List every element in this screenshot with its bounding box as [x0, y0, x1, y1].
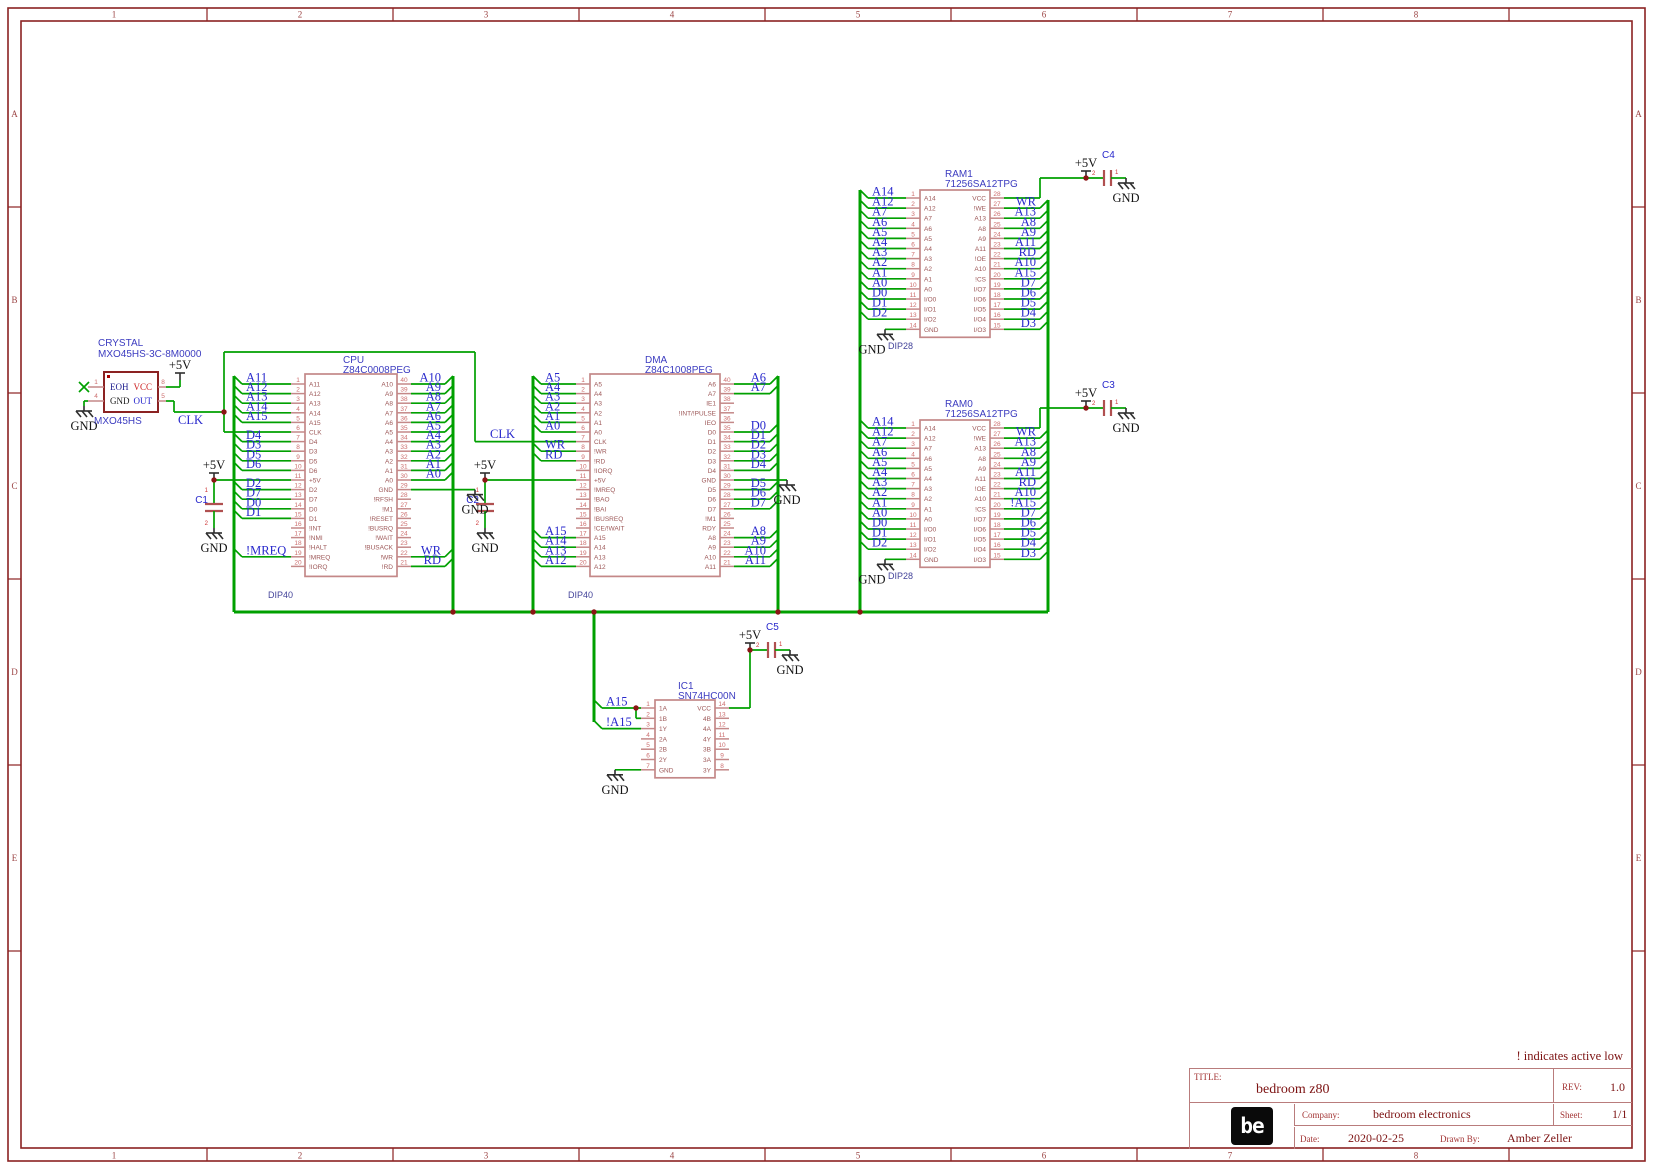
pin-number: 5 — [646, 742, 650, 749]
pin-number: 36 — [723, 415, 731, 422]
pin-number: 40 — [400, 377, 408, 384]
pin-name: A14 — [309, 410, 321, 417]
pin-name: A14 — [594, 545, 606, 552]
pin-name: !WE — [974, 436, 987, 443]
net-label: D3 — [1021, 546, 1036, 560]
pin1-marker — [107, 375, 110, 378]
pin-name: A0 — [924, 516, 932, 523]
pin-name: A9 — [708, 545, 716, 552]
gnd-icon — [788, 655, 793, 661]
chip-part: 71256SA12TPG — [945, 409, 1018, 420]
pin-name: A3 — [924, 486, 932, 493]
pin-number: 6 — [646, 753, 650, 760]
pin-name: !BUSACK — [364, 545, 393, 552]
pin-name: I/O6 — [974, 297, 987, 304]
pin-number: 2 — [911, 431, 915, 438]
pin-number: 14 — [579, 502, 587, 509]
pin-number: 4 — [296, 406, 300, 413]
pin-name: IE1 — [706, 401, 716, 408]
pin-name: IEO — [705, 420, 716, 427]
pin-number: 18 — [579, 540, 587, 547]
pin-number: 4 — [911, 451, 915, 458]
pin-name: I/O7 — [974, 516, 987, 523]
pin-name: 2A — [659, 736, 668, 743]
frame-row-label: A — [1635, 109, 1642, 119]
net-label: D2 — [872, 536, 887, 550]
junction-dot — [775, 609, 780, 614]
pin-number: 13 — [909, 312, 917, 319]
frame-column-label: 6 — [1042, 1151, 1047, 1161]
gnd-icon — [791, 485, 796, 491]
pin-number: 6 — [581, 425, 585, 432]
pin-number: 11 — [295, 473, 302, 480]
pin-number: 28 — [993, 421, 1001, 428]
pin-name: !MREQ — [594, 487, 615, 494]
pin-name: I/O1 — [924, 537, 937, 544]
pin-name: 4Y — [703, 736, 712, 743]
pin-number: 8 — [581, 444, 585, 451]
frame-column-label: 1 — [112, 10, 117, 20]
pin-name: A11 — [705, 564, 716, 571]
pin-name: !CE/!WAIT — [594, 526, 624, 533]
pin-name: D0 — [309, 506, 318, 513]
junction-dot — [1083, 175, 1088, 180]
pin-number: 4 — [94, 393, 98, 400]
pin-number: 35 — [400, 425, 408, 432]
pin-number: 8 — [911, 492, 915, 499]
frame-column-label: 5 — [856, 10, 861, 20]
pin-name: I/O1 — [924, 307, 937, 314]
pin-number: 16 — [993, 312, 1001, 319]
pin-number: 21 — [723, 559, 731, 566]
drawn-by-value: Amber Zeller — [1507, 1131, 1572, 1146]
pin-name: !BUSREQ — [594, 516, 623, 523]
pin-name: !CS — [975, 506, 987, 513]
schematic-sheet: 1122334455667788AABBCCDDEECLK+5VGNDC112+… — [0, 0, 1653, 1169]
pin-number: 34 — [723, 435, 731, 442]
pin-name: !M1 — [705, 516, 716, 523]
pin-number: 1 — [296, 377, 300, 384]
pin-number: 3 — [911, 441, 915, 448]
sheet-value: 1/1 — [1612, 1107, 1627, 1122]
pin-name: A2 — [594, 410, 602, 417]
pin-name: I/O7 — [974, 286, 987, 293]
pin-name: 4B — [703, 716, 711, 723]
pin-number: 24 — [993, 231, 1001, 238]
v5-label: +5V — [1075, 156, 1097, 170]
pin-number: 2 — [911, 201, 915, 208]
net-label: A12 — [545, 553, 567, 567]
pin-number: 31 — [723, 463, 731, 470]
pin-name: A10 — [974, 266, 986, 273]
crystal-pin-name: GND — [110, 396, 130, 406]
pin-number: 11 — [910, 292, 917, 299]
pin-name: A9 — [978, 236, 986, 243]
frame-column-label: 4 — [670, 10, 675, 20]
pin-number: 21 — [993, 262, 1001, 269]
pin-name: A4 — [924, 476, 932, 483]
frame-row-label: D — [1635, 667, 1642, 677]
net-label: D1 — [246, 505, 261, 519]
pin-number: 19 — [993, 512, 1001, 519]
pin-number: 20 — [993, 502, 1001, 509]
pin-number: 13 — [579, 492, 587, 499]
pin-number: 33 — [400, 444, 408, 451]
pin-number: 18 — [993, 292, 1001, 299]
pin-name: A3 — [385, 449, 393, 456]
gnd-icon — [619, 775, 624, 781]
pin-name: 3B — [703, 747, 711, 754]
pin-number: 9 — [720, 753, 724, 760]
frame-row-label: C — [11, 481, 17, 491]
capacitor-pin-number: 2 — [756, 643, 760, 649]
pin-name: D7 — [309, 497, 318, 504]
frame-row-label: B — [11, 295, 17, 305]
net-label-clk: CLK — [178, 413, 203, 427]
crystal-pin-name: OUT — [134, 396, 153, 406]
frame-column-label: 8 — [1414, 10, 1419, 20]
pin-name: I/O0 — [924, 527, 937, 534]
gnd-icon — [889, 334, 894, 340]
pin-name: !OE — [975, 486, 987, 493]
pin-number: 34 — [400, 435, 408, 442]
pin-name: A1 — [924, 506, 932, 513]
pin-number: 2 — [581, 387, 585, 394]
capacitor-pin-number: 2 — [205, 521, 209, 527]
pin-name: A5 — [594, 382, 602, 389]
pin-number: 3 — [581, 396, 585, 403]
pin-name: I/O3 — [974, 557, 987, 564]
v5-label: +5V — [739, 628, 761, 642]
pin-name: !INT — [309, 526, 321, 533]
pin-number: 26 — [400, 511, 408, 518]
pin-number: 3 — [296, 396, 300, 403]
pin-name: A7 — [924, 216, 932, 223]
gnd-icon — [479, 495, 484, 501]
pin-name: !RESET — [370, 516, 394, 523]
pin-name: A12 — [924, 436, 936, 443]
chip-cpu: CPUZ84C0008PEGDIP401A11A112A12A123A13A13… — [234, 355, 475, 600]
pin-number: 38 — [400, 396, 408, 403]
junction-dot — [1083, 405, 1088, 410]
pin-number: 21 — [400, 559, 408, 566]
frame-column-label: 5 — [856, 1151, 861, 1161]
pin-number: 8 — [720, 763, 724, 770]
pin-name: I/O0 — [924, 297, 937, 304]
pin-number: 35 — [723, 425, 731, 432]
capacitor-ref: C3 — [1102, 380, 1115, 391]
gnd-icon — [1118, 183, 1123, 189]
pin-number: 10 — [909, 282, 917, 289]
frame-column-label: 7 — [1228, 1151, 1233, 1161]
pin-number: 14 — [294, 502, 302, 509]
pin-name: !BUSRQ — [368, 526, 393, 533]
pin-name: D6 — [309, 468, 318, 475]
pin-name: !IORQ — [309, 564, 327, 571]
v5-label: +5V — [474, 458, 496, 472]
gnd-label: GND — [858, 342, 885, 356]
pin-name: GND — [659, 767, 674, 774]
gnd-icon — [76, 411, 81, 417]
pin-name: +5V — [309, 478, 321, 485]
v5-label: +5V — [203, 458, 225, 472]
pin-number: 5 — [296, 415, 300, 422]
crystal-ref: CRYSTAL — [98, 338, 144, 349]
frame-column-label: 1 — [112, 1151, 117, 1161]
net-label: A7 — [751, 380, 766, 394]
pin-number: 16 — [579, 521, 587, 528]
pin-name: A15 — [309, 420, 321, 427]
pin-number: 37 — [400, 406, 408, 413]
gnd-label: GND — [776, 663, 803, 677]
capacitor-pin-number: 1 — [205, 488, 209, 494]
pin-name: A1 — [385, 468, 393, 475]
pin-number: 37 — [723, 406, 731, 413]
net-label: !MREQ — [246, 543, 286, 557]
pin-name: RDY — [702, 526, 716, 533]
gnd-icon — [218, 533, 223, 539]
pin-number: 23 — [723, 540, 731, 547]
company-cell: Company: bedroom electronics — [1294, 1104, 1553, 1126]
gnd-icon — [477, 533, 482, 539]
pin-name: A6 — [924, 456, 932, 463]
gnd-icon — [782, 655, 787, 661]
pin-number: 29 — [723, 483, 731, 490]
title-cell: TITLE: bedroom z80 — [1190, 1069, 1553, 1103]
pin-number: 10 — [718, 742, 726, 749]
pin-name: 2B — [659, 747, 667, 754]
pin-number: 19 — [993, 282, 1001, 289]
pin-name: D1 — [708, 439, 717, 446]
pin-name: A10 — [704, 554, 716, 561]
chip-part: Z84C0008PEG — [343, 365, 411, 376]
rev-value: 1.0 — [1610, 1080, 1625, 1095]
pin-name: 1B — [659, 716, 667, 723]
net-label: RD — [424, 553, 441, 567]
pin-name: A2 — [385, 458, 393, 465]
gnd-icon — [489, 533, 494, 539]
pin-number: 39 — [400, 387, 408, 394]
pin-name: !RFSH — [374, 497, 394, 504]
pin-name: A2 — [924, 496, 932, 503]
pin-name: A15 — [594, 535, 606, 542]
company-label: Company: — [1302, 1110, 1340, 1120]
pin-name: !WR — [380, 554, 393, 561]
pin-number: 6 — [911, 242, 915, 249]
junction-dot — [530, 609, 535, 614]
pin-number: 27 — [723, 502, 731, 509]
pin-name: A4 — [385, 439, 393, 446]
pin-number: 14 — [909, 552, 917, 559]
pin-number: 32 — [723, 454, 731, 461]
gnd-icon — [889, 564, 894, 570]
pin-number: 17 — [993, 302, 1001, 309]
crystal-pin-name: EOH — [110, 382, 129, 392]
gnd-icon — [1130, 183, 1135, 189]
pin-name: A0 — [924, 286, 932, 293]
pin-number: 28 — [993, 191, 1001, 198]
pin-number: 20 — [294, 559, 302, 566]
pin-number: 15 — [993, 552, 1001, 559]
pin-number: 26 — [993, 211, 1001, 218]
net-label: A0 — [426, 467, 441, 481]
gnd-label: GND — [1112, 191, 1139, 205]
pin-number: 19 — [294, 550, 302, 557]
pin-number: 14 — [718, 701, 726, 708]
pin-number: 9 — [911, 502, 915, 509]
chip-part: 71256SA12TPG — [945, 179, 1018, 190]
rev-cell: REV: 1.0 — [1553, 1069, 1632, 1103]
junction-dot — [633, 705, 638, 710]
pin-name: !INT/!PULSE — [679, 410, 717, 417]
pin-name: A8 — [385, 401, 393, 408]
capacitor-ref: C1 — [195, 495, 208, 506]
chip-body — [590, 374, 720, 576]
pin-name: CLK — [594, 439, 607, 446]
pin-name: A7 — [924, 446, 932, 453]
pin-name: A12 — [924, 206, 936, 213]
net-label: D4 — [751, 457, 767, 471]
pin-name: A1 — [594, 420, 602, 427]
pin-name: GND — [702, 478, 717, 485]
pin-name: VCC — [972, 196, 986, 203]
pin-name: A8 — [708, 535, 716, 542]
pin-name: A2 — [924, 266, 932, 273]
chip-ic1: IC1SN74HC00N11AA1521B31Y!A1542A52B62Y7GN… — [594, 681, 736, 778]
gnd-icon — [607, 775, 612, 781]
pin-name: I/O6 — [974, 527, 987, 534]
pin-number: 7 — [581, 435, 585, 442]
pin-name: !IORQ — [594, 468, 612, 475]
pin-name: !NMI — [309, 535, 323, 542]
pin-name: D3 — [309, 449, 318, 456]
net-label: RD — [545, 447, 562, 461]
pin-name: A13 — [309, 401, 321, 408]
pin-number: 1 — [581, 377, 585, 384]
pin-number: 10 — [909, 512, 917, 519]
gnd-label: GND — [461, 503, 488, 517]
net-label: A15 — [606, 695, 628, 709]
pin-name: A4 — [594, 391, 602, 398]
gnd-icon — [483, 533, 488, 539]
chip-footprint: DIP40 — [568, 590, 593, 600]
pin-name: !WE — [974, 206, 987, 213]
pin-number: 5 — [911, 461, 915, 468]
sheet-cell: Sheet: 1/1 — [1553, 1104, 1632, 1126]
pin-number: 23 — [993, 472, 1001, 479]
pin-name: A9 — [385, 391, 393, 398]
pin-name: A0 — [385, 478, 393, 485]
pin-name: 1A — [659, 706, 668, 713]
pin-name: A13 — [974, 216, 986, 223]
pin-name: A14 — [924, 196, 936, 203]
pin-name: !MREQ — [309, 554, 330, 561]
net-label: D6 — [246, 457, 261, 471]
pin-name: A3 — [924, 256, 932, 263]
capacitor-pin-number: 2 — [476, 521, 480, 527]
pin-number: 10 — [579, 463, 587, 470]
pin-number: 1 — [646, 701, 650, 708]
frame-column-label: 3 — [484, 1151, 489, 1161]
capacitor-pin-number: 1 — [779, 642, 783, 648]
net-label: !A15 — [606, 715, 632, 729]
pin-name: D4 — [708, 468, 717, 475]
junction-dot — [221, 409, 226, 414]
pin-number: 7 — [296, 435, 300, 442]
pin-name: D3 — [708, 458, 717, 465]
pin-number: 28 — [400, 492, 408, 499]
pin-number: 18 — [294, 540, 302, 547]
pin-number: 13 — [294, 492, 302, 499]
pin-name: D5 — [309, 458, 318, 465]
pin-name: D4 — [309, 439, 318, 446]
pin-number: 9 — [581, 454, 585, 461]
pin-number: 4 — [581, 406, 585, 413]
pin-name: !RD — [594, 458, 606, 465]
pin-number: 30 — [723, 473, 731, 480]
pin-number: 14 — [909, 322, 917, 329]
pin-name: D5 — [708, 487, 717, 494]
pin-name: A8 — [978, 456, 986, 463]
pin-number: 15 — [993, 322, 1001, 329]
pin-number: 25 — [993, 221, 1001, 228]
pin-number: 17 — [993, 532, 1001, 539]
chip-part: Z84C1008PEG — [645, 365, 713, 376]
junction-dot — [211, 477, 216, 482]
pin-number: 27 — [993, 201, 1001, 208]
pin-name: !OE — [975, 256, 987, 263]
gnd-label: GND — [773, 493, 800, 507]
chip-part: SN74HC00N — [678, 691, 736, 702]
pin-number: 4 — [646, 732, 650, 739]
gnd-icon — [785, 485, 790, 491]
pin-number: 6 — [911, 472, 915, 479]
gnd-icon — [877, 334, 882, 340]
sheet-inner-border — [21, 21, 1632, 1148]
pin-number: 23 — [993, 242, 1001, 249]
pin-name: A4 — [924, 246, 932, 253]
pin-name: A11 — [975, 476, 986, 483]
junction-dot — [482, 477, 487, 482]
pin-name: +5V — [594, 478, 606, 485]
pin-number: 7 — [911, 252, 915, 259]
sheet-label: Sheet: — [1560, 1110, 1583, 1120]
sheet-outer-border — [8, 8, 1645, 1161]
pin-number: 23 — [400, 540, 408, 547]
gnd-label: GND — [858, 572, 885, 586]
pin-number: 22 — [993, 252, 1001, 259]
pin-name: A13 — [974, 446, 986, 453]
pin-number: 15 — [294, 511, 302, 518]
pin-number: 25 — [723, 521, 731, 528]
company-logo: be — [1231, 1107, 1273, 1145]
pin-name: !BAI — [594, 506, 606, 513]
pin-number: 13 — [909, 542, 917, 549]
gnd-icon — [883, 334, 888, 340]
gnd-label: GND — [1112, 421, 1139, 435]
pin-name: A10 — [381, 382, 393, 389]
pin-number: 25 — [993, 451, 1001, 458]
pin-number: 27 — [993, 431, 1001, 438]
pin-name: D2 — [708, 449, 717, 456]
pin-name: A5 — [924, 236, 932, 243]
pin-name: A7 — [385, 410, 393, 417]
capacitor-pin-number: 1 — [1115, 400, 1119, 406]
pin-number: 2 — [296, 387, 300, 394]
gnd-icon — [212, 533, 217, 539]
pin-name: A11 — [309, 382, 320, 389]
frame-row-label: D — [11, 667, 18, 677]
